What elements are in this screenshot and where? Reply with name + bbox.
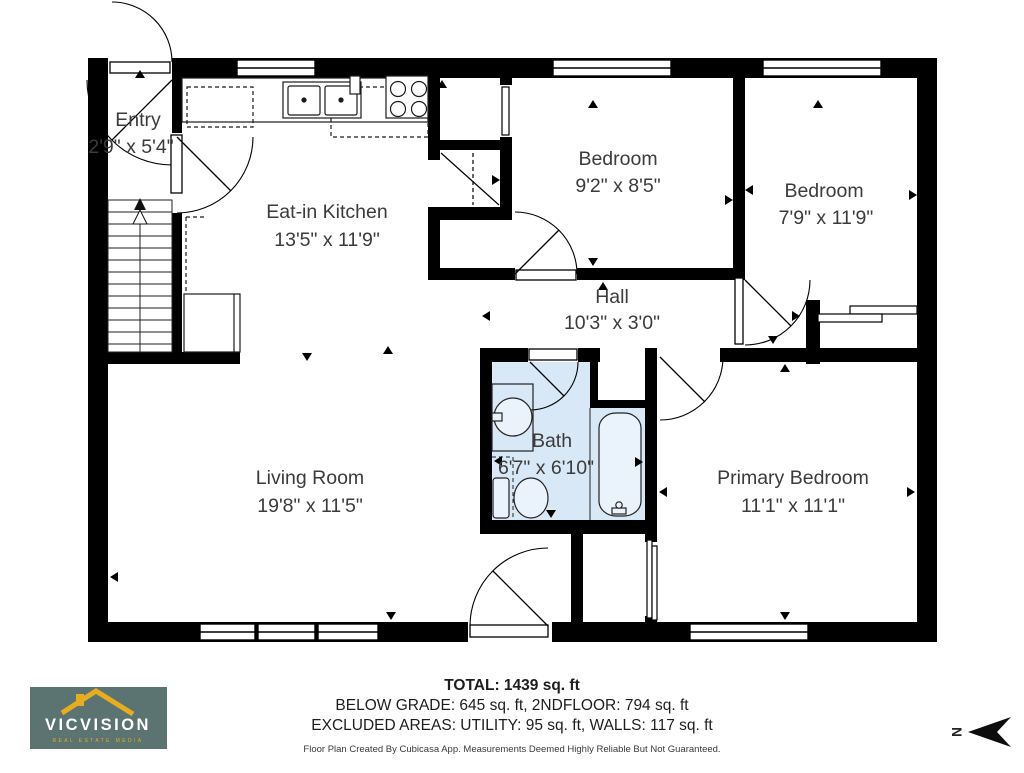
- logo-graphic: VICVISION REAL ESTATE MEDIA: [30, 687, 167, 749]
- room-dims-hall: 10'3" x 3'0": [564, 312, 660, 334]
- floor-plan: Entry 2'9" x 5'4" Eat-in Kitchen 13'5" x…: [0, 0, 1024, 768]
- logo-roof-icon: [62, 691, 133, 714]
- room-dims-living: 19'8" x 11'5": [257, 495, 363, 517]
- room-dims-bath: 6'7" x 6'10": [498, 457, 594, 479]
- room-name-bedroom2: Bedroom: [784, 180, 863, 202]
- logo-brand-text: VICVISION: [45, 716, 151, 734]
- room-name-bedroom1: Bedroom: [578, 148, 657, 170]
- north-label: N: [949, 727, 964, 737]
- room-dims-kitchen: 13'5" x 11'9": [274, 229, 380, 251]
- vicvision-logo: VICVISION REAL ESTATE MEDIA: [30, 687, 167, 749]
- north-arrow: N: [933, 703, 1023, 765]
- room-name-bath: Bath: [532, 430, 572, 452]
- room-name-kitchen: Eat-in Kitchen: [266, 201, 387, 223]
- room-name-hall: Hall: [595, 286, 629, 308]
- room-dims-bedroom1: 9'2" x 8'5": [575, 175, 660, 197]
- logo-tagline-text: REAL ESTATE MEDIA: [53, 738, 144, 744]
- room-dims-entry: 2'9" x 5'4": [88, 136, 173, 158]
- room-name-entry: Entry: [115, 109, 161, 131]
- room-dims-primary: 11'1" x 11'1": [741, 495, 845, 517]
- floor-plan-page: Entry 2'9" x 5'4" Eat-in Kitchen 13'5" x…: [0, 0, 1024, 768]
- room-name-primary: Primary Bedroom: [717, 467, 869, 489]
- room-name-living: Living Room: [256, 467, 364, 489]
- north-arrow-icon: N: [933, 703, 1023, 765]
- room-dims-bedroom2: 7'9" x 11'9": [779, 207, 874, 229]
- stairs: [108, 198, 172, 352]
